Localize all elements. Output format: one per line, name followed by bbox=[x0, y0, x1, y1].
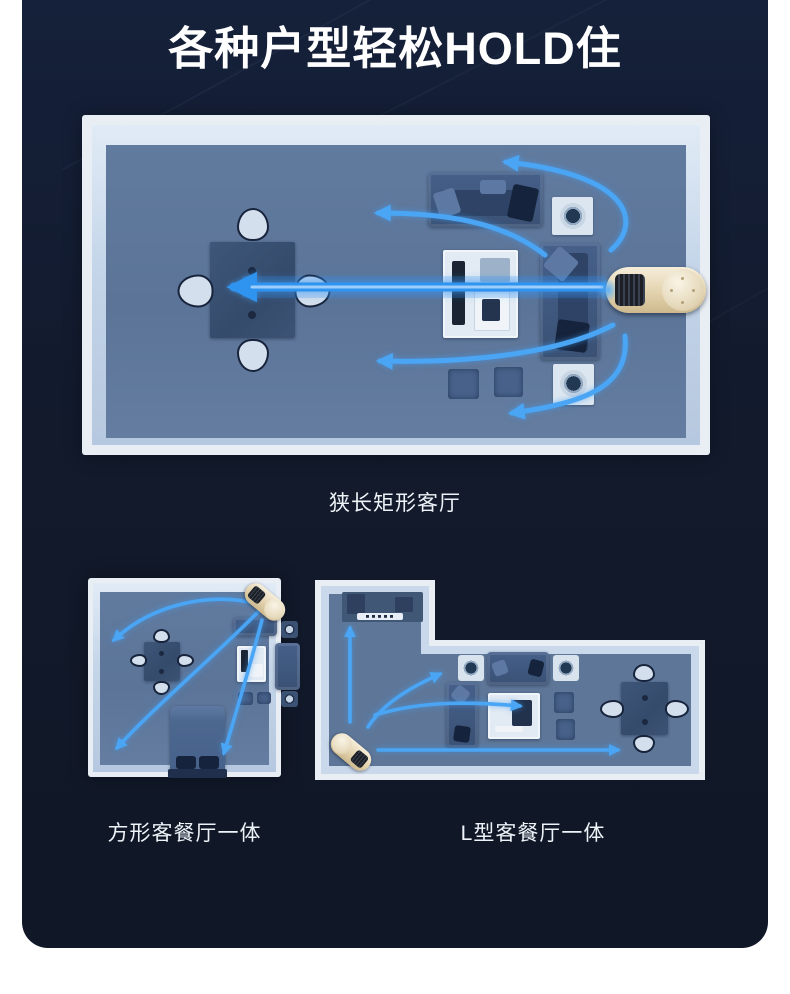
floorplan-l-shape bbox=[315, 578, 707, 782]
promo-page: 各种户型轻松HOLD住 bbox=[0, 0, 790, 994]
fan-grille bbox=[247, 585, 267, 605]
fan-grille bbox=[615, 274, 645, 306]
speaker bbox=[281, 621, 298, 638]
floorplan-caption: 狭长矩形客厅 bbox=[22, 487, 768, 517]
floorplan-narrow-rect bbox=[82, 115, 710, 455]
floorplan-square bbox=[88, 578, 281, 777]
fan-grille bbox=[350, 749, 370, 769]
fan-top-cap bbox=[662, 269, 704, 311]
speaker bbox=[281, 691, 298, 707]
airflow-arrow bbox=[375, 703, 520, 715]
airflow-arrow-upper bbox=[378, 213, 545, 255]
airflow-direction-arrow-group bbox=[88, 578, 281, 777]
airflow-arrow bbox=[114, 599, 254, 640]
airflow-direction-arrow-group bbox=[315, 578, 707, 782]
airflow-arrow bbox=[368, 674, 440, 727]
fan-device bbox=[606, 267, 706, 313]
airflow-arrow-lower bbox=[380, 325, 613, 361]
airflow-arrow-top-curve bbox=[506, 162, 626, 250]
floorplan-caption: L型客餐厅一体 bbox=[368, 817, 698, 847]
hero-panel: 各种户型轻松HOLD住 bbox=[22, 0, 768, 948]
airflow-arrow bbox=[117, 612, 258, 748]
floorplan-caption: 方形客餐厅一体 bbox=[88, 817, 281, 847]
airflow-arrow-bottom-curve bbox=[512, 336, 625, 413]
page-title: 各种户型轻松HOLD住 bbox=[22, 12, 768, 77]
